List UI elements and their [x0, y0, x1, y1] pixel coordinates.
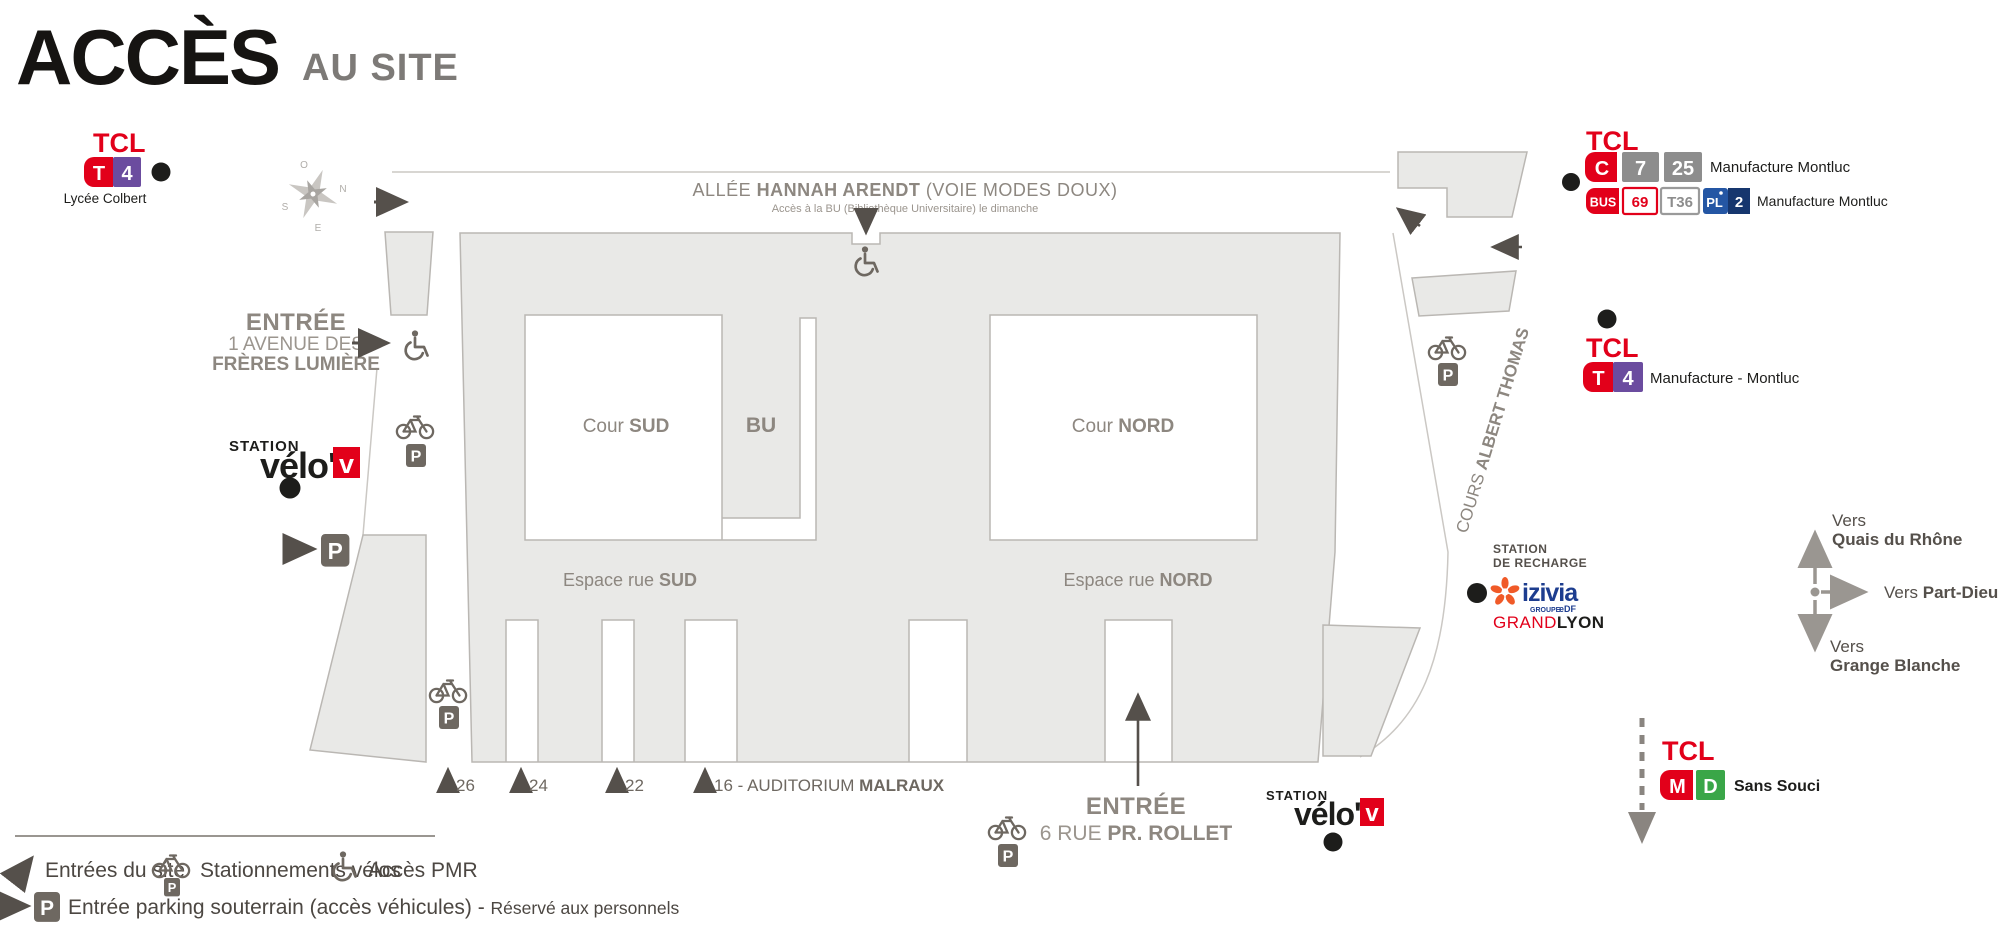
entree-rollet-address: 6 RUE PR. ROLLET [1040, 822, 1233, 845]
access-map-page: P ACCÈS AU SITE O N S E ALLÉE HANNAH ARE… [0, 0, 2000, 927]
metro-direction-arrowhead [1628, 812, 1656, 844]
compass-west-label: O [300, 160, 308, 171]
svg-text:69: 69 [1632, 194, 1649, 211]
velov-station-dot [1324, 833, 1343, 852]
svg-text:T: T [1592, 368, 1604, 390]
direction-up-vers: Vers [1832, 511, 1866, 530]
tcl-stop-lycee-colbert: TCL T 4 Lycée Colbert [64, 128, 171, 206]
charging-station-dot [1467, 583, 1487, 603]
parking-entrance-badge [34, 892, 60, 922]
velov-brand: vélo' [1294, 796, 1361, 832]
compass-north-label: N [339, 184, 346, 195]
tcl-stop-sans-souci: TCL M D Sans Souci [1628, 718, 1820, 844]
parking-entrance-badge [321, 534, 349, 567]
street-arrow-northeast [1402, 212, 1420, 226]
svg-text:4: 4 [1622, 368, 1634, 390]
bike-parking-badge [164, 878, 180, 896]
svg-text:T36: T36 [1667, 194, 1693, 211]
velov-station-west: STATION vélo' v [229, 438, 360, 499]
wheelchair-icon [406, 330, 428, 359]
velov-brand: vélo' [260, 445, 336, 486]
bike-parking-badge [439, 706, 459, 729]
grand-lyon-logo: GRANDLYON [1493, 613, 1605, 632]
allee-bu-access-note: Accès à la BU (Bibliothèque Universitair… [772, 203, 1039, 215]
velov-v-letter: v [339, 449, 354, 479]
svg-text:T: T [93, 163, 105, 185]
page-subtitle: AU SITE [302, 47, 459, 89]
pl-dot [1719, 191, 1723, 195]
compass-east-label: E [315, 223, 322, 234]
svg-text:25: 25 [1672, 158, 1694, 180]
izivia-swirl-icon [1490, 577, 1521, 606]
bike-icon [430, 681, 466, 703]
tcl-stop-manufacture-montluc: TCL C 7 25 Manufacture Montluc BUS 69 T3… [1562, 126, 1888, 214]
entrance-22-label: 22 [625, 776, 644, 795]
cour-sud-label: Cour SUD [583, 416, 670, 437]
entrance-24-label: 24 [529, 776, 548, 795]
velov-station-dot [280, 478, 301, 499]
northwest-block [385, 232, 433, 315]
numbered-entrances: 26 24 22 16 - AUDITORIUM MALRAUX [448, 774, 945, 795]
recharge-line1: STATION [1493, 542, 1547, 556]
southwest-wedge-block [310, 535, 426, 762]
svg-text:M: M [1669, 776, 1686, 798]
svg-text:PL: PL [1706, 195, 1723, 210]
entree-lumiere-title: ENTRÉE [246, 308, 346, 336]
page-title: ACCÈS [16, 13, 279, 101]
tcl-logo: TCL [1662, 736, 1714, 766]
svg-text:4: 4 [121, 163, 133, 185]
entree-lumiere-line2: FRÈRES LUMIÈRE [212, 353, 380, 375]
compass-south-label: S [282, 202, 289, 213]
main-building [460, 233, 1340, 762]
tcl-logo: TCL [1586, 333, 1638, 363]
recharge-line2: DE RECHARGE [1493, 556, 1587, 570]
southeast-block [1323, 625, 1420, 756]
charging-station: STATION DE RECHARGE izivia GROUPE eDF GR… [1467, 542, 1605, 632]
izivia-logo-text: izivia [1522, 579, 1579, 607]
velov-v-letter: v [1365, 800, 1379, 827]
compass-rose: O N S E [279, 160, 347, 234]
tcl-logo: TCL [1586, 126, 1638, 156]
svg-text:BUS: BUS [1590, 196, 1616, 210]
espace-rue-nord-label: Espace rue NORD [1063, 570, 1212, 590]
direction-hub-dot [1811, 588, 1820, 597]
velov-station-south: STATION vélo' v [1266, 788, 1384, 852]
bike-icon [989, 818, 1025, 840]
bike-parking-badge [998, 844, 1018, 867]
svg-text:7: 7 [1635, 158, 1646, 180]
direction-cross: Vers Quais du Rhône Vers Part-Dieu Vers … [1811, 511, 1999, 675]
entree-lumiere-line1: 1 AVENUE DES [228, 334, 364, 355]
entrance-26-label: 26 [456, 776, 475, 795]
direction-down-destination: Grange Blanche [1830, 656, 1960, 675]
bu-label: BU [746, 414, 776, 437]
entrance-16-label: 16 - AUDITORIUM MALRAUX [714, 776, 945, 795]
svg-text:D: D [1703, 776, 1717, 798]
stop-name-line2: Manufacture Montluc [1757, 193, 1888, 209]
west-street-edge [363, 368, 377, 535]
bike-icon [1429, 338, 1465, 360]
tcl-stop-manufacture-tram: TCL T 4 Manufacture - Montluc [1583, 310, 1800, 393]
bike-parking-badge [406, 444, 426, 467]
stop-name: Manufacture - Montluc [1650, 370, 1800, 387]
stop-name: Sans Souci [1734, 778, 1820, 795]
legend-pmr-label: Accès PMR [368, 859, 478, 882]
direction-down-vers: Vers [1830, 637, 1864, 656]
espace-rue-sud-label: Espace rue SUD [563, 570, 697, 590]
stop-dot [152, 163, 171, 182]
stop-dot [1562, 173, 1580, 191]
entree-rollet-title: ENTRÉE [1086, 792, 1186, 820]
svg-text:2: 2 [1735, 194, 1743, 211]
tcl-logo: TCL [93, 128, 145, 158]
bike-parking-badge [1438, 363, 1458, 386]
direction-right-destination: Vers Part-Dieu [1884, 583, 1998, 602]
bike-icon [397, 417, 433, 439]
stop-dot [1598, 310, 1617, 329]
legend-parking-label: Entrée parking souterrain (accès véhicul… [68, 896, 679, 919]
stop-name: Lycée Colbert [64, 191, 147, 206]
legend: Entrées du site Stationnements vélos Acc… [8, 836, 679, 922]
east-street-block [1412, 271, 1516, 316]
allee-hannah-arendt-label: ALLÉE HANNAH ARENDT (VOIE MODES DOUX) [693, 180, 1118, 200]
site-access-map: P ACCÈS AU SITE O N S E ALLÉE HANNAH ARE… [0, 0, 2000, 927]
site-entrance-legend-icon [14, 863, 28, 881]
direction-up-destination: Quais du Rhône [1832, 530, 1962, 549]
cour-nord-label: Cour NORD [1072, 416, 1174, 437]
stop-name-line1: Manufacture Montluc [1710, 159, 1851, 176]
northeast-block [1398, 152, 1527, 217]
svg-text:C: C [1595, 158, 1609, 180]
